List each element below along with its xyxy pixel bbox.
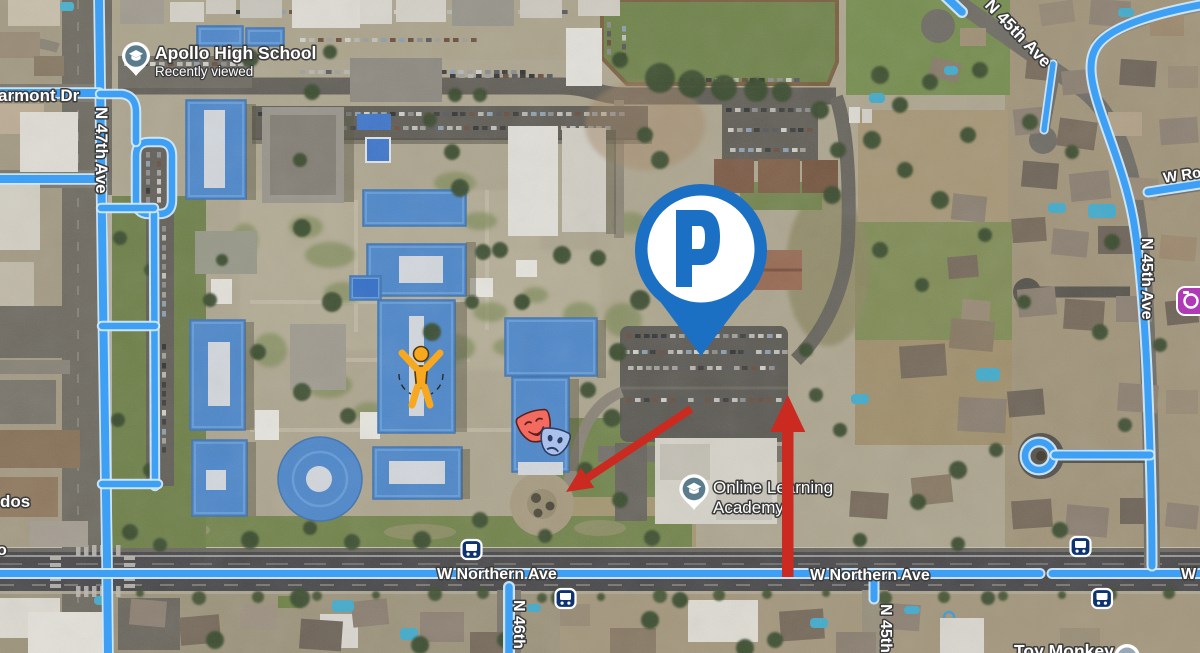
svg-text:armont Dr: armont Dr — [0, 86, 80, 105]
svg-text:Academy: Academy — [713, 498, 784, 517]
svg-text:Apollo High School: Apollo High School — [155, 43, 316, 63]
svg-text:dos: dos — [0, 492, 30, 511]
svg-text:N 45th Ave: N 45th Ave — [1138, 238, 1155, 320]
svg-text:W Northern Ave: W Northern Ave — [437, 566, 557, 583]
svg-text:Toy Monkey: Toy Monkey — [1014, 641, 1114, 653]
svg-text:W Northern Ave: W Northern Ave — [810, 567, 930, 584]
svg-text:W N: W N — [1181, 566, 1200, 583]
svg-text:Recently viewed: Recently viewed — [155, 64, 253, 79]
svg-text:o: o — [0, 542, 7, 559]
svg-text:N 47th Ave: N 47th Ave — [92, 107, 111, 194]
svg-text:N 46th: N 46th — [510, 600, 527, 649]
svg-text:Online Learning: Online Learning — [713, 478, 833, 497]
svg-text:N 45th: N 45th — [877, 604, 894, 653]
